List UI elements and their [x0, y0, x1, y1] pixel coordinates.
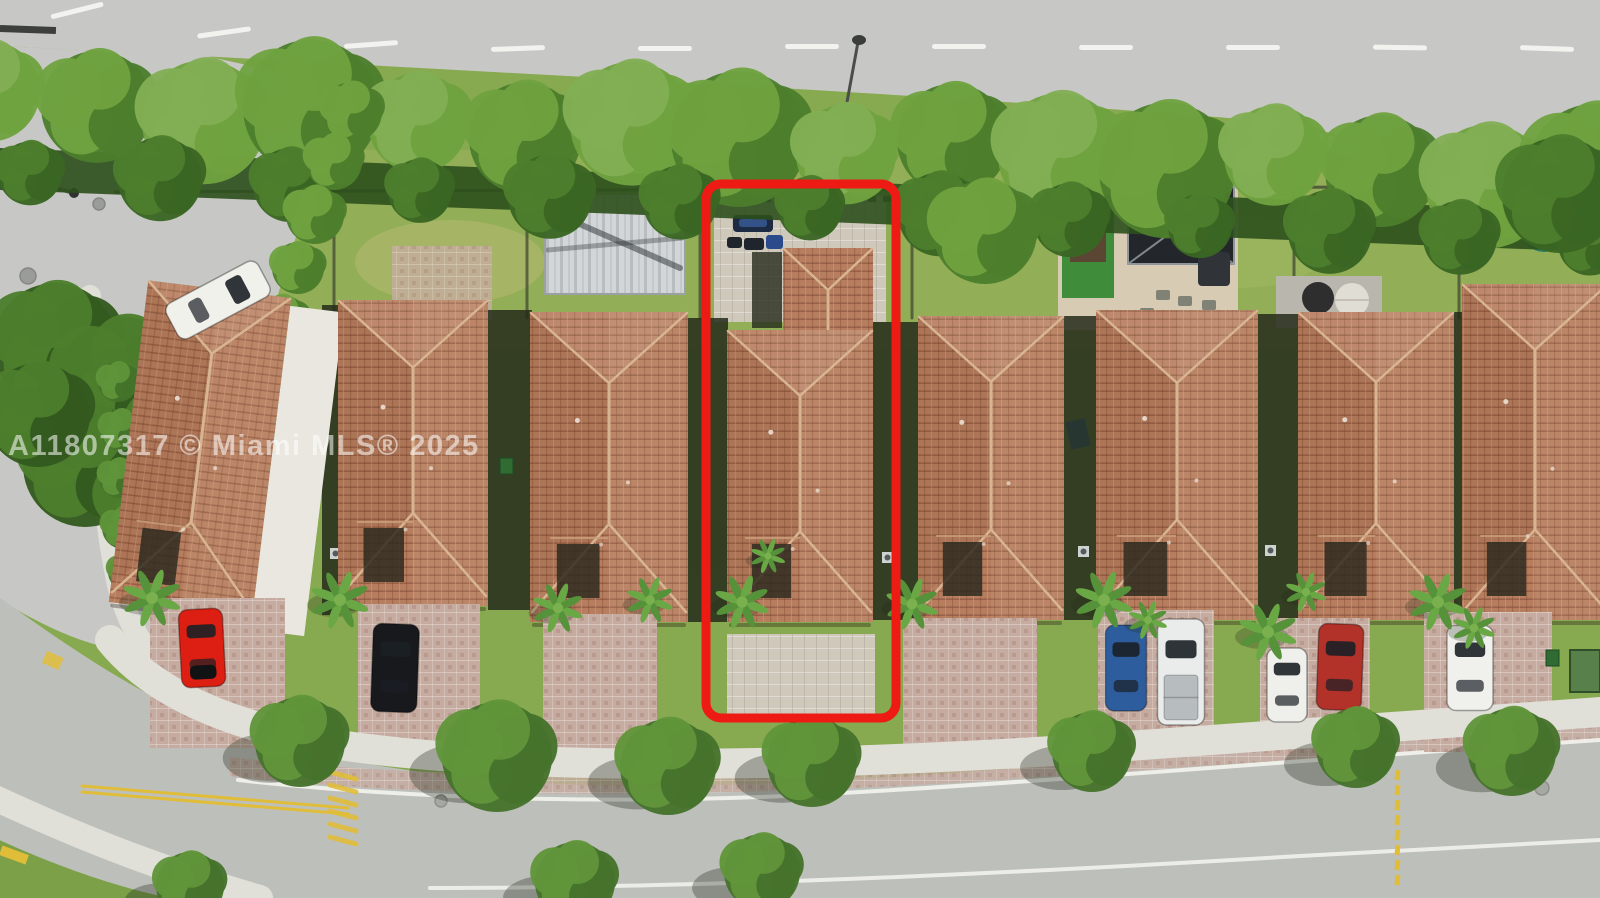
blue-suv — [1106, 625, 1147, 711]
red-sports-car — [178, 608, 226, 688]
house-6 — [1096, 310, 1258, 623]
white-pickup-truck — [1158, 619, 1205, 725]
house-4-subject — [752, 248, 873, 332]
red-sedan — [1316, 623, 1364, 711]
white-sedan — [1267, 648, 1307, 722]
aerial-photo-stage: A11807317 © Miami MLS® 2025 — [0, 0, 1600, 898]
house-3 — [530, 312, 688, 625]
house-8 — [1462, 284, 1600, 623]
house-5 — [918, 316, 1064, 623]
aerial-photo — [0, 0, 1600, 898]
black-sedan — [370, 623, 419, 713]
house-2 — [338, 300, 488, 609]
house-7 — [1298, 312, 1454, 623]
